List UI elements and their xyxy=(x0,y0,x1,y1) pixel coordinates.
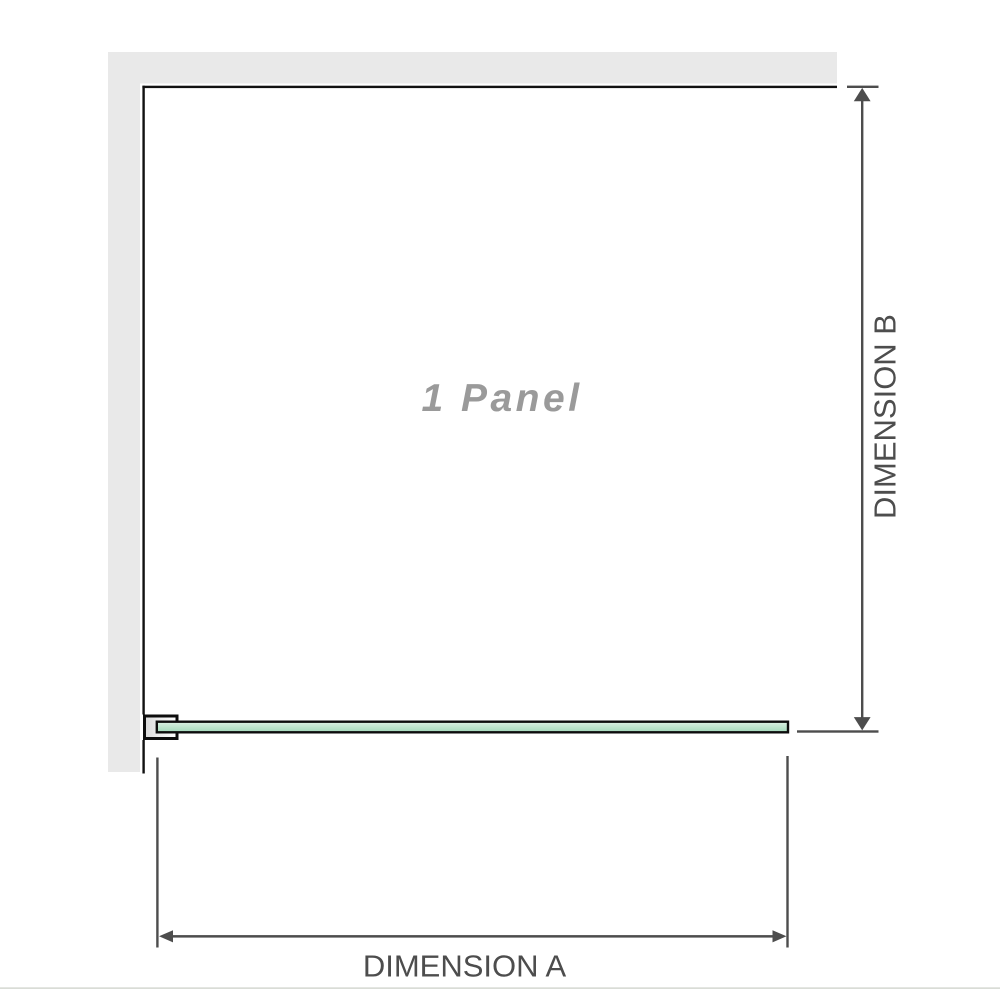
svg-text:1 Panel: 1 Panel xyxy=(421,377,582,420)
svg-text:DIMENSION A: DIMENSION A xyxy=(363,949,567,984)
svg-text:DIMENSION B: DIMENSION B xyxy=(868,314,903,519)
